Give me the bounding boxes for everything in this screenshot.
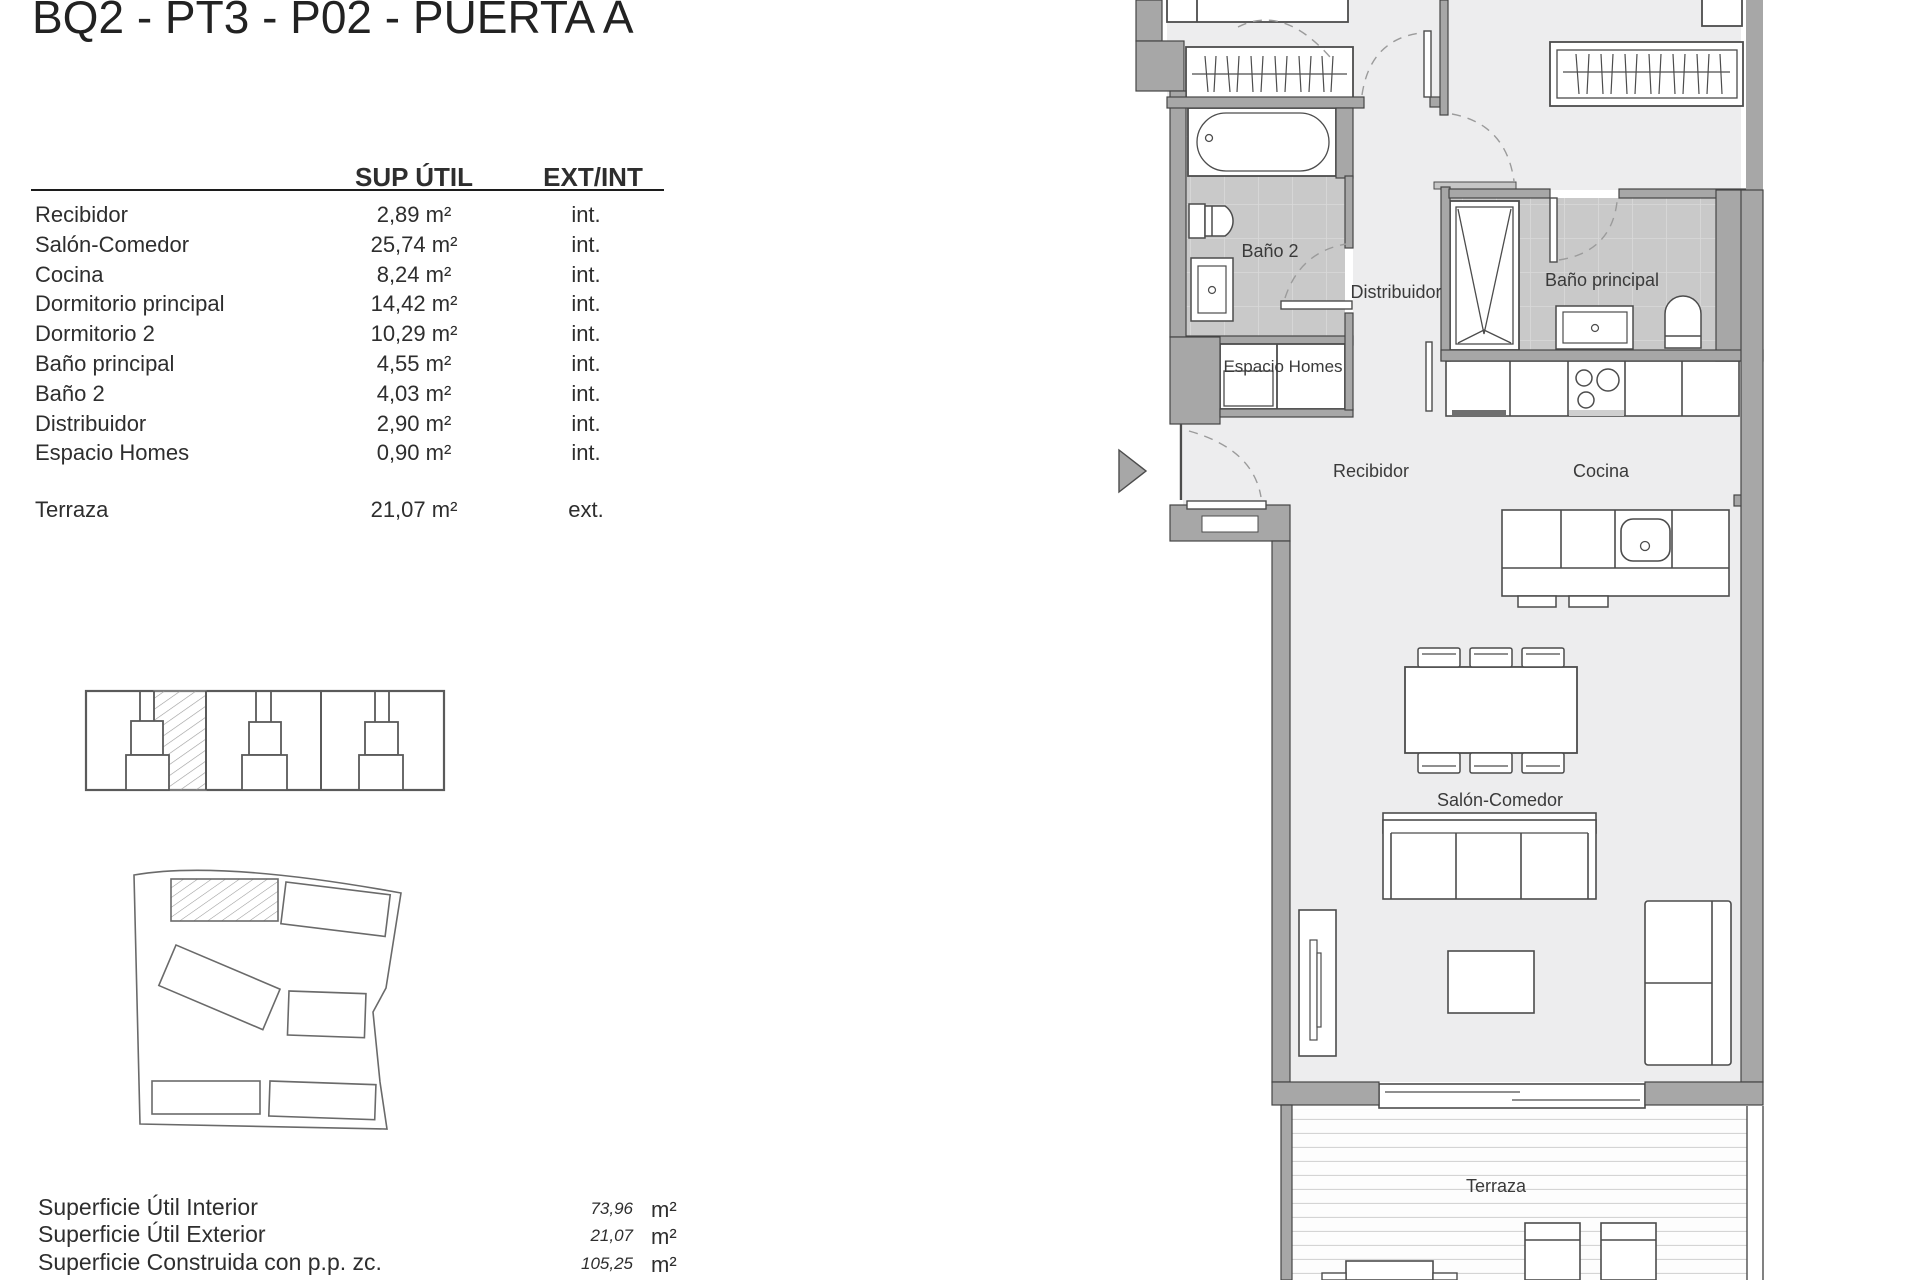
svg-text:Terraza: Terraza xyxy=(1466,1176,1527,1196)
svg-text:Baño 2: Baño 2 xyxy=(1241,241,1298,261)
svg-text:Recibidor: Recibidor xyxy=(1333,461,1409,481)
svg-text:Distribuidor: Distribuidor xyxy=(1350,282,1441,302)
svg-text:Espacio Homes: Espacio Homes xyxy=(1223,357,1342,376)
svg-text:Cocina: Cocina xyxy=(1573,461,1630,481)
svg-text:Baño principal: Baño principal xyxy=(1545,270,1659,290)
svg-text:Salón-Comedor: Salón-Comedor xyxy=(1437,790,1563,810)
